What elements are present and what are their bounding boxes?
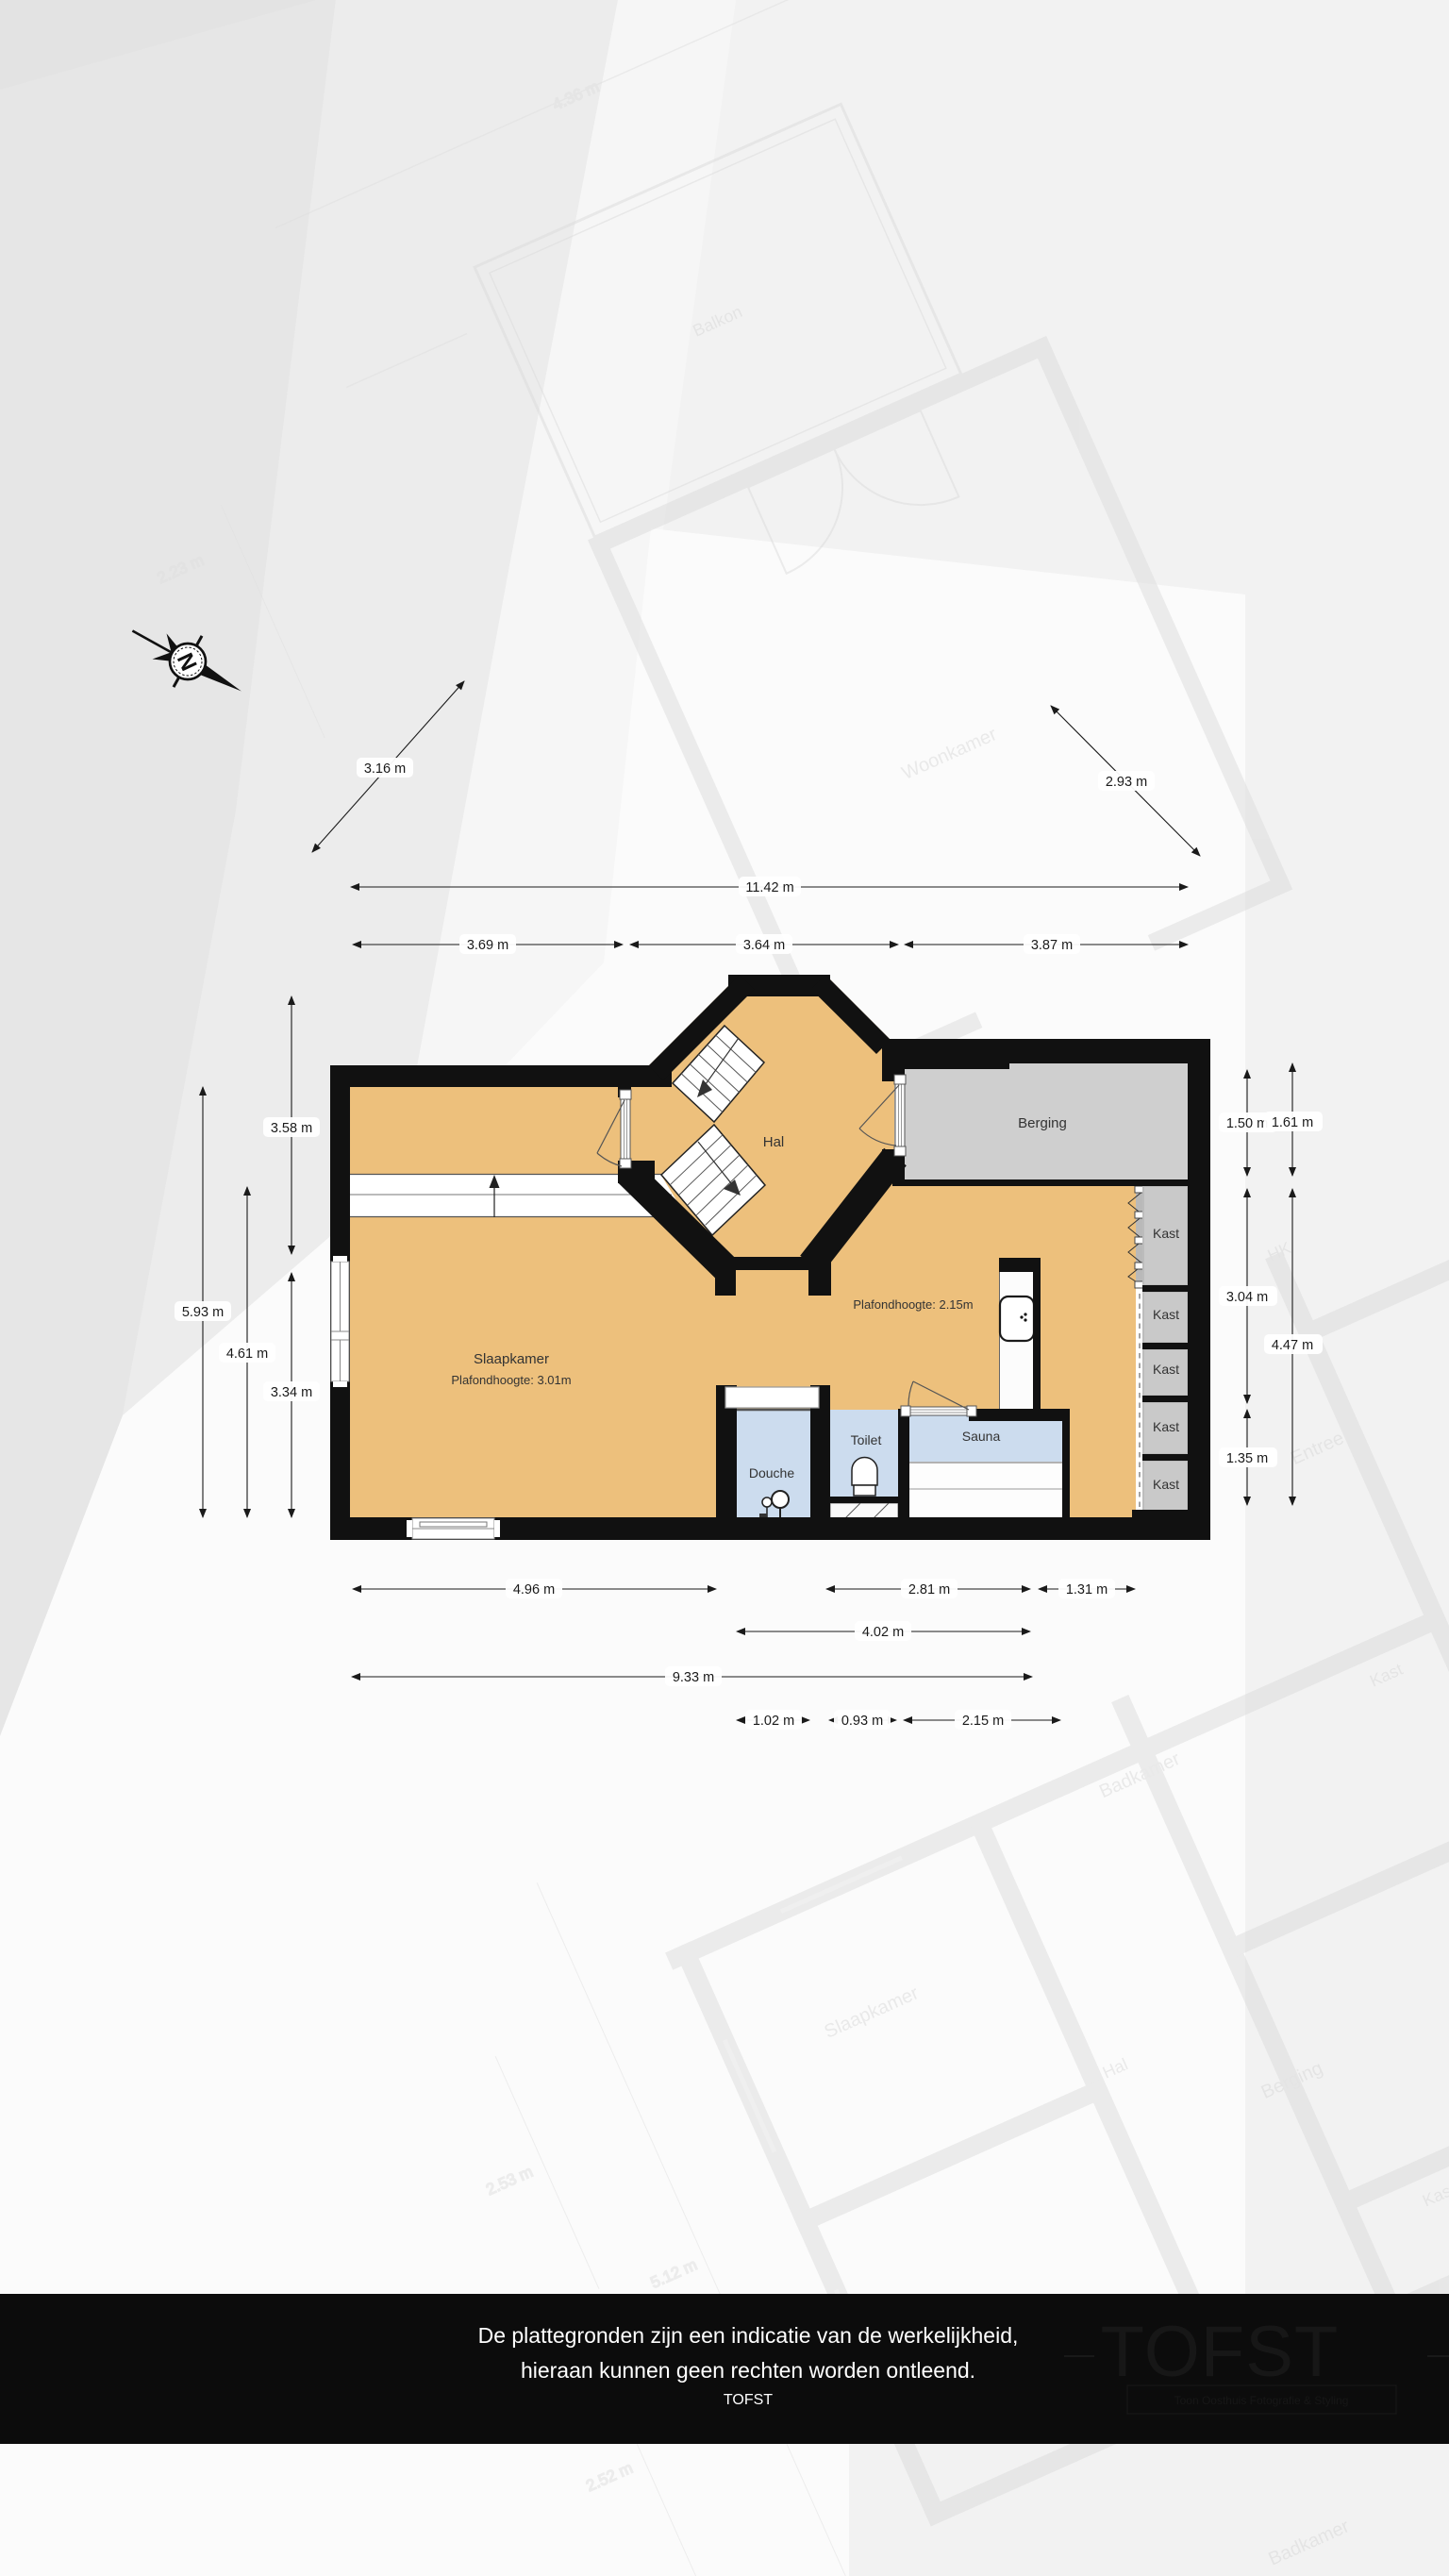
svg-text:3.87 m: 3.87 m [1031, 938, 1073, 953]
svg-text:Douche: Douche [749, 1465, 794, 1480]
svg-text:1.35 m: 1.35 m [1226, 1451, 1268, 1466]
svg-text:4.61 m: 4.61 m [226, 1347, 268, 1362]
svg-text:Kast: Kast [1153, 1226, 1179, 1241]
svg-text:2.81 m: 2.81 m [908, 1582, 950, 1597]
svg-text:2.93 m: 2.93 m [1106, 775, 1147, 790]
svg-text:3.64 m: 3.64 m [743, 938, 785, 953]
svg-text:4.47 m: 4.47 m [1272, 1338, 1313, 1353]
svg-text:2.15 m: 2.15 m [962, 1714, 1004, 1729]
svg-text:1.61 m: 1.61 m [1272, 1115, 1313, 1130]
svg-text:5.93 m: 5.93 m [182, 1305, 224, 1320]
svg-text:3.16 m: 3.16 m [364, 761, 406, 777]
svg-text:hieraan kunnen geen rechten wo: hieraan kunnen geen rechten worden ontle… [521, 2358, 975, 2383]
svg-text:Plafondhoogte: 2.15m: Plafondhoogte: 2.15m [853, 1297, 973, 1312]
svg-text:Sauna: Sauna [962, 1429, 1001, 1444]
svg-text:1.50 m: 1.50 m [1226, 1116, 1268, 1131]
svg-text:9.33 m: 9.33 m [673, 1670, 714, 1685]
svg-text:Kast: Kast [1153, 1477, 1179, 1492]
svg-text:4.02 m: 4.02 m [862, 1625, 904, 1640]
svg-text:TOFST: TOFST [1101, 2312, 1340, 2392]
svg-text:4.96 m: 4.96 m [513, 1582, 555, 1597]
svg-text:1.31 m: 1.31 m [1066, 1582, 1108, 1597]
svg-text:Toilet: Toilet [851, 1432, 882, 1447]
svg-text:3.69 m: 3.69 m [467, 938, 508, 953]
svg-text:Berging: Berging [1018, 1115, 1067, 1131]
svg-text:3.34 m: 3.34 m [271, 1385, 312, 1400]
svg-text:0.93 m: 0.93 m [841, 1714, 883, 1729]
svg-text:Kast: Kast [1153, 1362, 1179, 1377]
svg-text:Slaapkamer: Slaapkamer [474, 1351, 549, 1367]
svg-text:1.02 m: 1.02 m [753, 1714, 794, 1729]
svg-text:De plattegronden zijn een indi: De plattegronden zijn een indicatie van … [478, 2323, 1019, 2348]
svg-text:3.58 m: 3.58 m [271, 1121, 312, 1136]
svg-text:3.04 m: 3.04 m [1226, 1290, 1268, 1305]
svg-text:Hal: Hal [763, 1134, 785, 1150]
svg-text:Kast: Kast [1153, 1419, 1179, 1434]
svg-text:Kast: Kast [1153, 1307, 1179, 1322]
svg-text:TOFST: TOFST [724, 2392, 773, 2408]
svg-text:Plafondhoogte: 3.01m: Plafondhoogte: 3.01m [451, 1373, 571, 1387]
svg-text:11.42 m: 11.42 m [745, 880, 793, 895]
svg-text:Toon Oosthuis Fotografie & Sty: Toon Oosthuis Fotografie & Styling [1174, 2394, 1349, 2407]
